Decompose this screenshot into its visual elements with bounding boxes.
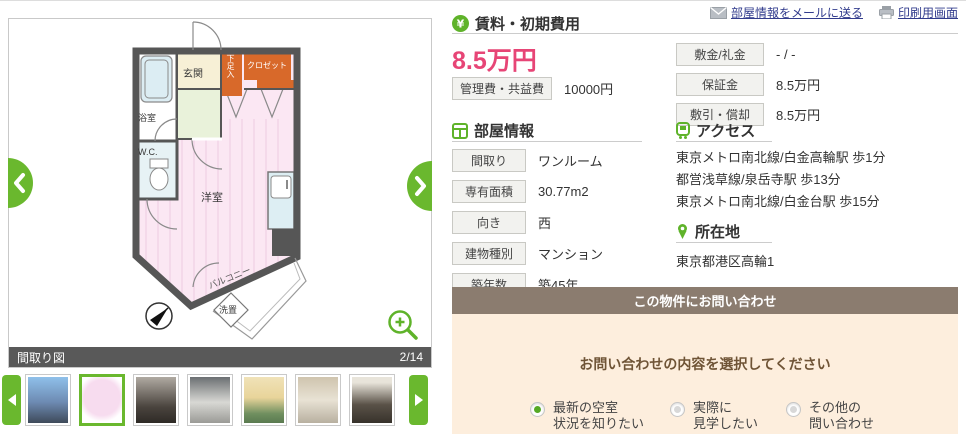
layout-label: 間取り	[452, 149, 526, 172]
guarantee-value: 8.5万円	[776, 75, 820, 94]
location-section-title: 所在地	[695, 221, 740, 242]
table-row: 敷金/礼金 - / -	[676, 43, 820, 66]
floorplan-label-laundry: 洗置	[219, 303, 237, 316]
rent-price: 8.5万円	[452, 41, 537, 77]
access-line: 東京メトロ南北線/白金高輪駅 歩1分	[676, 147, 885, 169]
thumbnail-toilet[interactable]	[295, 374, 341, 426]
radio-button[interactable]	[786, 402, 801, 417]
thumbnail-room-interior-dark[interactable]	[133, 374, 179, 426]
location-section-header: 所在地	[676, 221, 740, 242]
thumbnail-strip	[0, 372, 440, 430]
inquiry-body: お問い合わせの内容を選択してください 最新の空室 状況を知りたい 実際に 見学し…	[452, 314, 958, 434]
inquiry-option-vacancy[interactable]: 最新の空室 状況を知りたい	[530, 400, 644, 432]
floorplan-label-closet: クロゼット	[247, 60, 287, 71]
building-type-label: 建物種別	[452, 242, 526, 265]
image-caption: 間取り図	[17, 349, 65, 366]
inquiry-prompt: お問い合わせの内容を選択してください	[452, 354, 958, 374]
yen-circle-icon: ¥	[452, 15, 469, 32]
floorplan-label-bathroom: 浴室	[138, 111, 156, 124]
print-page-link[interactable]: 印刷用画面	[879, 4, 958, 21]
thumbnail-kitchen[interactable]	[187, 374, 233, 426]
chevron-right-icon	[415, 394, 423, 406]
thumbnail-image	[244, 377, 284, 423]
floorplan-label-shoe-box: 下足入	[225, 54, 235, 98]
inquiry-option-other[interactable]: その他の 問い合わせ	[786, 400, 874, 432]
deposit-value: - / -	[776, 47, 796, 62]
room-info-section-title: 部屋情報	[474, 120, 534, 141]
thumbnail-image	[352, 377, 392, 423]
svg-text:¥: ¥	[457, 18, 465, 31]
chevron-left-icon	[8, 158, 34, 208]
rent-section-rule	[452, 33, 958, 34]
layout-value: ワンルーム	[538, 151, 603, 170]
thumbnail-image	[298, 377, 338, 423]
image-counter: 2/14	[400, 350, 423, 364]
property-detail-page: 玄関 下足入 クロゼット 浴室 W.C. 洋室 バルコニー 洗置	[0, 0, 966, 434]
inquiry-option-visit[interactable]: 実際に 見学したい	[670, 400, 758, 432]
floorplan-label-wc: W.C.	[138, 147, 158, 157]
building-type-value: マンション	[538, 244, 603, 263]
area-value: 30.77m2	[538, 184, 589, 199]
access-rule	[676, 141, 772, 142]
guarantee-label: 保証金	[676, 73, 764, 96]
facing-value: 西	[538, 213, 551, 232]
rent-section-header: ¥ 賃料・初期費用	[452, 13, 580, 34]
option-label-line: 状況を知りたい	[553, 416, 644, 431]
inquiry-box: この物件にお問い合わせ お問い合わせの内容を選択してください 最新の空室 状況を…	[452, 287, 958, 434]
thumbnail-room-interior[interactable]	[349, 374, 395, 426]
thumbnail-floor-plan[interactable]	[79, 374, 125, 426]
area-label: 専有面積	[452, 180, 526, 203]
option-label-line: 問い合わせ	[809, 416, 874, 431]
thumbnails-prev-button[interactable]	[2, 375, 21, 425]
thumbnails-next-button[interactable]	[409, 375, 428, 425]
amortization-value: 8.5万円	[776, 105, 820, 124]
thumbnail-hallway[interactable]	[241, 374, 287, 426]
access-section-title: アクセス	[696, 120, 755, 141]
header-links: 部屋情報をメールに送る 印刷用画面	[690, 4, 958, 21]
property-address: 東京都港区高輪1	[676, 251, 774, 270]
table-row: 間取り ワンルーム	[452, 149, 603, 172]
option-label-line: 最新の空室	[553, 400, 618, 415]
thumbnail-image	[82, 377, 122, 423]
management-fee-row: 管理費・共益費 10000円	[452, 77, 613, 100]
room-info-section-header: 部屋情報	[452, 120, 534, 141]
next-image-button[interactable]	[406, 161, 432, 216]
management-fee-value: 10000円	[564, 79, 613, 98]
rent-section-title: 賃料・初期費用	[475, 13, 580, 34]
thumbnail-image	[136, 377, 176, 423]
compass-north-icon	[146, 303, 172, 329]
table-row: 建物種別 マンション	[452, 242, 603, 265]
image-viewer: 玄関 下足入 クロゼット 浴室 W.C. 洋室 バルコニー 洗置	[8, 18, 432, 368]
zoom-in-button[interactable]	[387, 309, 419, 341]
management-fee-label: 管理費・共益費	[452, 77, 552, 100]
facing-label: 向き	[452, 211, 526, 234]
floorplan-label-genkan: 玄関	[183, 65, 203, 80]
option-label-line: 実際に	[693, 400, 732, 415]
radio-button[interactable]	[670, 402, 685, 417]
map-pin-icon	[676, 223, 689, 240]
access-lines: 東京メトロ南北線/白金高輪駅 歩1分 都営浅草線/泉岳寺駅 歩13分 東京メトロ…	[676, 147, 885, 213]
thumbnail-image	[28, 377, 68, 423]
location-rule	[676, 242, 772, 243]
radio-button-selected[interactable]	[530, 402, 545, 417]
access-section-header: アクセス	[676, 120, 755, 141]
mail-envelope-icon	[710, 7, 727, 19]
option-label-line: 見学したい	[693, 416, 758, 431]
train-icon	[676, 122, 690, 139]
floorplan-label-main-room: 洋室	[201, 189, 223, 205]
table-row: 保証金 8.5万円	[676, 73, 820, 96]
thumbnail-building-exterior[interactable]	[25, 374, 71, 426]
room-grid-icon	[452, 123, 468, 139]
deposit-label: 敷金/礼金	[676, 43, 764, 66]
thumbnail-image	[190, 377, 230, 423]
prev-image-button[interactable]	[8, 158, 34, 213]
room-info-table: 間取り ワンルーム 専有面積 30.77m2 向き 西 建物種別 マンション 築…	[452, 149, 603, 304]
room-info-rule	[452, 141, 642, 142]
send-mail-link[interactable]: 部屋情報をメールに送る	[710, 4, 863, 21]
printer-icon	[879, 6, 894, 19]
inquiry-title: この物件にお問い合わせ	[452, 287, 958, 314]
table-row: 向き 西	[452, 211, 603, 234]
chevron-right-icon	[406, 161, 432, 211]
magnifier-plus-icon	[387, 309, 419, 341]
caption-bar: 間取り図 2/14	[9, 347, 431, 367]
access-line: 東京メトロ南北線/白金台駅 歩15分	[676, 191, 885, 213]
top-divider	[0, 0, 966, 1]
option-label-line: その他の	[809, 400, 861, 415]
table-row: 専有面積 30.77m2	[452, 180, 603, 203]
floorplan-image	[9, 19, 431, 347]
access-line: 都営浅草線/泉岳寺駅 歩13分	[676, 169, 885, 191]
chevron-left-icon	[8, 394, 16, 406]
